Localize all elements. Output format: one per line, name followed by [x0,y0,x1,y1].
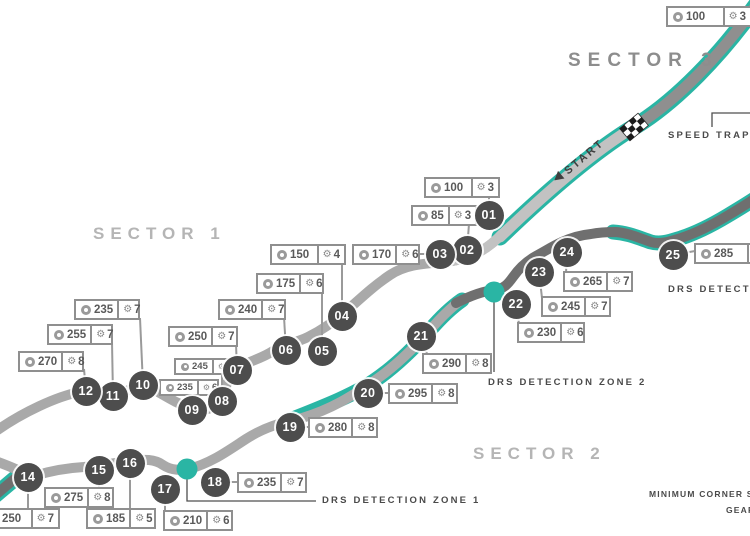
speedometer-icon [81,305,91,315]
speed-value: 235 [257,477,276,489]
gear-value: 6 [316,278,322,290]
gear-cell: ⚙3 [723,8,750,25]
min-speed-cell: 170 [354,246,395,263]
gear-icon: ⚙ [612,277,621,287]
gear-icon: ⚙ [454,211,463,221]
gear-icon: ⚙ [590,302,599,312]
gear-cell: ⚙6 [560,324,587,341]
speed-gear-label-11: 255⚙7 [47,324,113,345]
corner-marker-19: 19 [276,413,305,442]
corner-marker-12: 12 [72,377,101,406]
gear-value: 6 [577,327,583,339]
gear-cell: ⚙6 [395,246,422,263]
speed-value: 250 [2,513,21,525]
corner-marker-10: 10 [129,371,158,400]
corner-marker-08: 08 [208,387,237,416]
corner-marker-20: 20 [354,379,383,408]
gear-value: 7 [278,304,284,316]
min-speed-cell: 295 [390,385,431,402]
gear-cell: ⚙7 [280,474,307,491]
speed-gear-label-04: 150⚙4 [270,244,346,265]
drs-detection-marker-2 [484,282,505,303]
gear-icon: ⚙ [212,516,221,526]
gear-value: 6 [412,249,418,261]
speedometer-icon [244,478,254,488]
legend-min-corner-speed: MINIMUM CORNER SPEED [649,489,750,499]
gear-icon: ⚙ [67,357,76,367]
gear-value: 7 [134,304,140,316]
corner-marker-04: 04 [328,302,357,331]
gear-cell: ⚙8 [87,489,114,506]
gear-value: 3 [488,182,494,194]
speed-value: 270 [38,356,57,368]
speed-gear-label-01: 100⚙3 [424,177,500,198]
corner-marker-07: 07 [223,356,252,385]
speed-gear-label-22: 230⚙6 [517,322,585,343]
gear-cell: ⚙7 [211,328,238,345]
corner-marker-23: 23 [525,258,554,287]
speed-gear-label-edge: 100⚙3 [666,6,750,27]
min-speed-cell: 245 [176,360,212,373]
speed-value: 280 [328,422,347,434]
speed-gear-label-02: 85⚙3 [411,205,477,226]
gear-cell: ⚙7 [31,510,58,527]
min-speed-cell: 100 [426,179,471,196]
drs-detection-zone2-label: DRS DETECTION ZONE 2 [488,377,647,388]
gear-value: 5 [146,513,152,525]
gear-cell: ⚙6 [206,512,233,529]
corner-marker-09: 09 [178,396,207,425]
gear-icon: ⚙ [267,305,276,315]
min-speed-cell: 85 [413,207,448,224]
corner-marker-21: 21 [407,322,436,351]
gear-cell: ⚙8 [351,419,378,436]
speed-gear-label-14: 250⚙7 [0,508,60,529]
legend-gear: GEAR [726,505,750,515]
gear-icon: ⚙ [566,328,575,338]
corner-marker-01: 01 [475,201,504,230]
gear-icon: ⚙ [729,12,738,22]
gear-value: 3 [740,11,746,23]
gear-icon: ⚙ [93,493,102,503]
min-speed-cell: 250 [0,510,31,527]
speed-gear-label-18: 235⚙7 [237,472,307,493]
speed-value: 295 [408,388,427,400]
min-speed-cell: 235 [76,301,117,318]
gear-cell: ⚙7 [117,301,144,318]
gear-value: 8 [104,492,110,504]
speed-gear-label-10: 235⚙7 [74,299,140,320]
gear-icon: ⚙ [123,305,132,315]
speed-gear-label-15: 275⚙8 [44,487,114,508]
speed-gear-label-19: 280⚙8 [308,417,378,438]
speed-value: 85 [431,210,444,222]
gear-cell: ⚙8 [61,353,88,370]
speedometer-icon [673,12,683,22]
min-speed-cell: 240 [220,301,261,318]
speed-gear-label-05: 175⚙6 [256,273,324,294]
min-speed-cell: 100 [668,8,723,25]
speed-gear-label-06: 240⚙7 [218,299,286,320]
gear-value: 3 [465,210,471,222]
corner-marker-02: 02 [453,236,482,265]
min-speed-cell: 270 [20,353,61,370]
gear-value: 7 [623,276,629,288]
corner-marker-17: 17 [151,475,180,504]
gear-value: 7 [297,477,303,489]
speed-value: 100 [444,182,463,194]
gear-icon: ⚙ [471,359,480,369]
gear-cell: ⚙8 [465,355,492,372]
gear-icon: ⚙ [217,332,226,342]
speed-value: 250 [188,331,207,343]
corner-marker-05: 05 [308,337,337,366]
circuit-drawing: START [0,0,750,536]
gear-value: 8 [482,358,488,370]
min-speed-cell: 265 [565,273,606,290]
gear-icon: ⚙ [286,478,295,488]
corner-marker-14: 14 [14,463,43,492]
sector1-label: SECTOR 1 [93,224,226,244]
min-speed-cell: 290 [424,355,465,372]
speedometer-icon [93,514,103,524]
speedometer-icon [429,359,439,369]
track-map: START SECTOR 1 SECTOR 2 SECTOR 3 SPEED T… [0,0,750,536]
gear-icon: ⚙ [37,514,46,524]
min-speed-cell: 150 [272,246,317,263]
min-speed-cell: 255 [49,326,90,343]
gear-value: 8 [368,422,374,434]
speedometer-icon [263,279,273,289]
speedometer-icon [570,277,580,287]
gear-icon: ⚙ [323,250,332,260]
speed-value: 255 [67,329,86,341]
min-speed-cell: 210 [165,512,206,529]
gear-cell: ⚙7 [90,326,117,343]
speed-value: 240 [238,304,257,316]
speedometer-icon [225,305,235,315]
gear-cell: ⚙7 [606,273,633,290]
speedometer-icon [315,423,325,433]
sector2-label: SECTOR 2 [473,444,606,464]
speed-value: 230 [537,327,556,339]
speed-value: 275 [64,492,83,504]
gear-icon: ⚙ [437,389,446,399]
corner-marker-11: 11 [99,382,128,411]
speed-value: 245 [192,361,208,372]
speed-trap-label: SPEED TRAP [668,130,750,141]
speed-value: 175 [276,278,295,290]
gear-cell: ⚙3 [448,207,475,224]
gear-value: 7 [601,301,607,313]
gear-cell: ⚙8 [431,385,458,402]
speedometer-icon [431,183,441,193]
speed-value: 210 [183,515,202,527]
corner-marker-25: 25 [659,241,688,270]
corner-marker-06: 06 [272,336,301,365]
gear-icon: ⚙ [203,384,210,392]
min-speed-cell: 275 [46,489,87,506]
speed-value: 185 [106,513,125,525]
speed-gear-label-07: 250⚙7 [168,326,238,347]
min-speed-cell: 245 [543,298,584,315]
speedometer-icon [395,389,405,399]
speedometer-icon [359,250,369,260]
gear-value: 7 [228,331,234,343]
min-speed-cell: 250 [170,328,211,345]
speedometer-icon [175,332,185,342]
speed-gear-label-03: 170⚙6 [352,244,420,265]
gear-icon: ⚙ [135,514,144,524]
speedometer-icon [181,363,189,371]
gear-value: 6 [223,515,229,527]
gear-cell: ⚙7 [261,301,288,318]
speed-value: 265 [583,276,602,288]
speedometer-icon [418,211,428,221]
speed-value: 150 [290,249,309,261]
speed-value: 290 [442,358,461,370]
corner-marker-24: 24 [553,238,582,267]
min-speed-cell: 285 [696,245,747,262]
gear-icon: ⚙ [357,423,366,433]
speedometer-icon [524,328,534,338]
speed-gear-label-20: 295⚙8 [388,383,458,404]
min-speed-cell: 235 [239,474,280,491]
gear-value: 8 [78,356,84,368]
speedometer-icon [51,493,61,503]
sector3-label: SECTOR 3 [568,50,719,72]
speed-value: 170 [372,249,391,261]
speed-gear-label-16: 185⚙5 [86,508,156,529]
gear-value: 4 [334,249,340,261]
min-speed-cell: 185 [88,510,129,527]
min-speed-cell: 235 [161,381,197,394]
speed-gear-label-12: 270⚙8 [18,351,84,372]
corner-marker-15: 15 [85,456,114,485]
gear-cell: ⚙3 [471,179,498,196]
speed-value: 285 [714,248,733,260]
speedometer-icon [54,330,64,340]
speed-gear-label-23: 245⚙7 [541,296,611,317]
gear-value: 8 [448,388,454,400]
speed-gear-label-24: 265⚙7 [563,271,633,292]
drs-detection-zone3-label: DRS DETECTION ZONE 3 [668,284,750,295]
speed-value: 245 [561,301,580,313]
gear-icon: ⚙ [401,250,410,260]
min-speed-cell: 230 [519,324,560,341]
gear-icon: ⚙ [96,330,105,340]
speedometer-icon [25,357,35,367]
speed-gear-label-25: 285⚙ [694,243,750,264]
drs-detection-marker-1 [177,459,198,480]
speedometer-icon [548,302,558,312]
gear-cell: ⚙4 [317,246,344,263]
gear-value: 7 [48,513,54,525]
corner-marker-03: 03 [426,240,455,269]
min-speed-cell: 280 [310,419,351,436]
track-start-straight [500,127,634,237]
gear-cell: ⚙5 [129,510,156,527]
min-speed-cell: 175 [258,275,299,292]
speed-gear-label-21: 290⚙8 [422,353,492,374]
speedometer-icon [166,384,174,392]
speed-trap-bracket [712,113,750,127]
speedometer-icon [277,250,287,260]
corner-marker-22: 22 [502,290,531,319]
speedometer-icon [170,516,180,526]
corner-marker-16: 16 [116,449,145,478]
gear-value: 7 [107,329,113,341]
corner-marker-18: 18 [201,468,230,497]
drs-detection-zone1-label: DRS DETECTION ZONE 1 [322,495,481,506]
gear-cell: ⚙7 [584,298,611,315]
speedometer-icon [701,249,711,259]
speed-value: 100 [686,11,705,23]
speed-value: 235 [177,382,193,393]
speed-gear-label-17: 210⚙6 [163,510,233,531]
gear-icon: ⚙ [477,183,486,193]
gear-cell: ⚙6 [299,275,326,292]
speed-value: 235 [94,304,113,316]
gear-icon: ⚙ [305,279,314,289]
